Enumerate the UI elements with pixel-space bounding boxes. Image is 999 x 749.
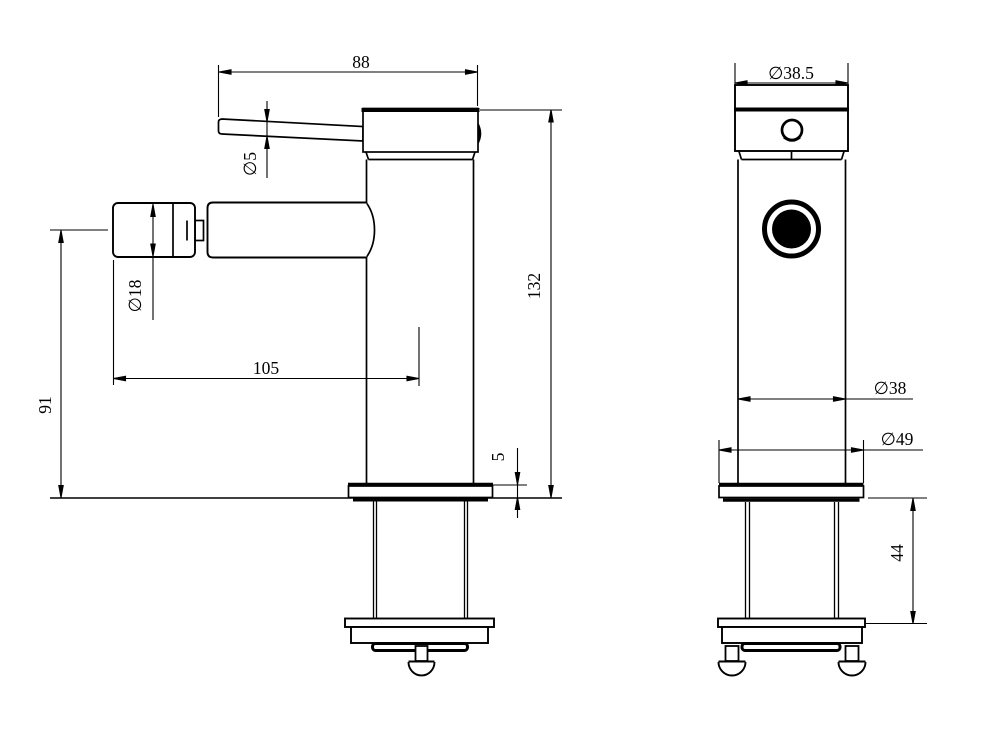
- front-left-bolt-stem: [726, 646, 739, 661]
- front-threaded-shank: [746, 502, 839, 618]
- dim-lever-length-label: 88: [352, 52, 370, 72]
- set-screw-hole: [782, 120, 802, 140]
- front-base-plate: [719, 486, 864, 498]
- front-view: ∅38.5 ∅38 ∅49 44: [718, 63, 927, 676]
- dim-shank-length-label: 44: [887, 544, 907, 562]
- spout-pipe: [208, 203, 367, 258]
- front-view-faucet-outline: [719, 85, 864, 500]
- mounting-nut: [351, 627, 488, 643]
- cap-indicator-dot: [478, 122, 482, 146]
- dim-spout-diameter-label: ∅18: [125, 279, 145, 312]
- front-right-bolt-head: [839, 662, 866, 676]
- front-mounting-washer: [718, 619, 865, 628]
- front-right-bolt-stem: [846, 646, 859, 661]
- spout-body-junction-arc: [367, 203, 375, 257]
- front-neck: [739, 152, 844, 160]
- dim-lever-diameter-label: ∅5: [240, 152, 260, 176]
- dim-base-diameter-label: ∅49: [881, 429, 914, 449]
- spout-outlet-hole: [772, 210, 811, 249]
- dim-body-diameter-label: ∅38: [874, 378, 907, 398]
- dim-plate-thickness-label: 5: [488, 452, 508, 461]
- technical-drawing-page: 88 ∅5 ∅18 105 91 132 5: [0, 0, 999, 749]
- threaded-shank: [374, 501, 468, 618]
- neck: [366, 152, 475, 160]
- front-mounting-nut: [722, 627, 862, 643]
- cartridge-cap: [363, 109, 478, 153]
- spout-connector: [195, 221, 204, 241]
- faucet-technical-drawing: 88 ∅5 ∅18 105 91 132 5: [0, 0, 999, 749]
- side-view: 88 ∅5 ∅18 105 91 132 5: [35, 52, 562, 675]
- front-left-bolt-head: [719, 662, 746, 676]
- dim-cap-diameter-label: ∅38.5: [768, 63, 814, 83]
- dim-overall-height-label: 132: [524, 273, 544, 299]
- dim-reach-label: 105: [253, 358, 280, 378]
- bolt-head: [409, 662, 435, 676]
- side-view-mounting-hardware: [345, 501, 494, 675]
- bolt-stem: [416, 646, 428, 661]
- front-rubber-gasket: [742, 644, 840, 651]
- base-plate: [349, 486, 493, 498]
- mounting-washer: [345, 619, 494, 628]
- dim-spout-height-label: 91: [35, 396, 55, 414]
- handle-lever: [219, 119, 364, 141]
- front-view-mounting-hardware: [718, 502, 866, 676]
